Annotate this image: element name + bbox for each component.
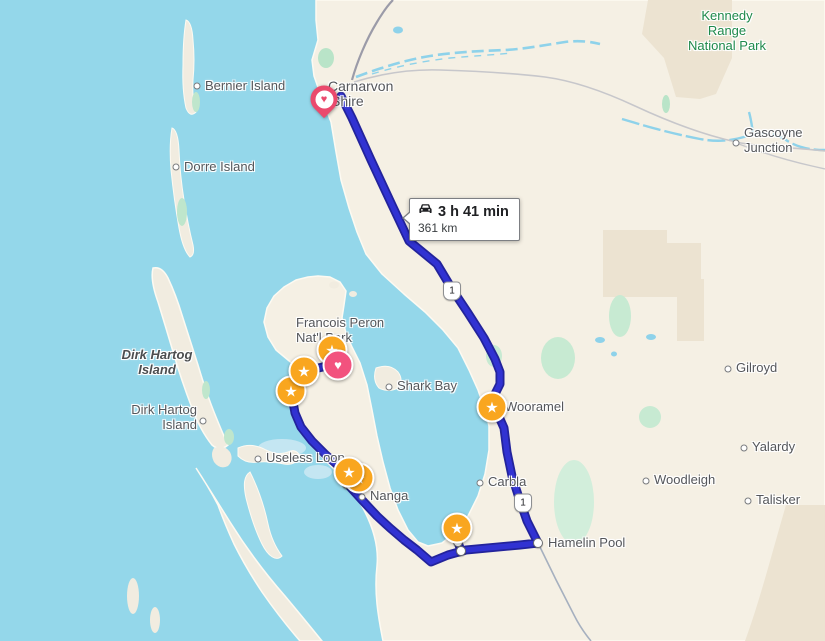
highway-1-shield: 1 — [514, 494, 532, 513]
locality-dot-gascoyne-junction — [733, 140, 740, 147]
vegetation — [639, 406, 661, 428]
pond — [393, 27, 403, 34]
label-line: Wooramel — [505, 399, 564, 414]
shallow — [177, 198, 187, 226]
locality-dot-carbla — [477, 480, 484, 487]
map-base-layer — [0, 0, 825, 641]
route-distance: 361 km — [418, 221, 509, 235]
locality-dot-dorre-island — [173, 164, 180, 171]
route-waypoint-dot — [456, 546, 466, 556]
map-label-useless-loop[interactable]: Useless Loop — [266, 450, 345, 465]
label-line: Dorre Island — [184, 159, 255, 174]
route-duration: 3 h 41 min — [438, 204, 509, 220]
map-label-dorre-island[interactable]: Dorre Island — [184, 159, 255, 174]
islet — [127, 578, 139, 614]
shallow — [202, 381, 210, 399]
locality-dot-talisker — [745, 498, 752, 505]
label-line: Talisker — [756, 492, 800, 507]
map-label-gascoyne-junction[interactable]: GascoyneJunction — [744, 125, 803, 155]
vegetation — [318, 48, 334, 68]
map-label-kennedy-range-national-park[interactable]: KennedyRangeNational Park — [688, 8, 766, 53]
route-waypoint-dot — [533, 538, 543, 548]
label-line: Gascoyne — [744, 125, 803, 140]
starred-place-marker[interactable]: ★ — [334, 457, 365, 488]
pond — [595, 337, 605, 343]
locality-dot-dirk-hartog-island-locality — [200, 418, 207, 425]
label-line: Carnarvon — [328, 79, 393, 94]
tooltip-pointer — [402, 211, 410, 225]
label-line: Island — [122, 362, 193, 377]
pond — [611, 352, 617, 357]
label-line: Dirk Hartog — [122, 347, 193, 362]
label-line: National Park — [688, 38, 766, 53]
label-line: Dirk Hartog — [131, 402, 197, 417]
islet — [329, 282, 339, 289]
map-label-carnarvon[interactable]: Carnarvon — [328, 79, 393, 94]
label-line: Kennedy — [688, 8, 766, 23]
map-label-hamelin-pool[interactable]: Hamelin Pool — [548, 535, 625, 550]
starred-place-marker[interactable]: ★ — [477, 392, 508, 423]
map-label-dirk-hartog-island-locality[interactable]: Dirk HartogIsland — [131, 402, 197, 432]
islet — [349, 291, 357, 297]
starred-place-marker[interactable]: ★ — [442, 513, 473, 544]
locality-dot-gilroyd — [725, 366, 732, 373]
label-line: Carbla — [488, 474, 526, 489]
map-label-yalardy[interactable]: Yalardy — [752, 439, 795, 454]
vegetation — [541, 337, 575, 379]
map-label-talisker[interactable]: Talisker — [756, 492, 800, 507]
label-line: Yalardy — [752, 439, 795, 454]
label-line: Useless Loop — [266, 450, 345, 465]
islet — [150, 607, 160, 633]
favorite-place-marker[interactable]: ♥ — [323, 350, 354, 381]
locality-dot-woodleigh — [643, 478, 650, 485]
map-canvas[interactable]: KennedyRangeNational ParkGascoyneJunctio… — [0, 0, 825, 641]
heart-icon: ♥ — [315, 90, 333, 108]
label-line: Island — [131, 417, 197, 432]
shallow — [192, 92, 200, 112]
map-label-wooramel[interactable]: Wooramel — [505, 399, 564, 414]
map-label-nanga[interactable]: Nanga — [370, 488, 408, 503]
shallow — [224, 429, 234, 445]
shoal — [304, 465, 332, 479]
map-label-bernier-island[interactable]: Bernier Island — [205, 78, 285, 93]
map-label-shark-bay[interactable]: Shark Bay — [397, 378, 457, 393]
label-line: Nanga — [370, 488, 408, 503]
locality-dot-useless-loop — [255, 456, 262, 463]
pond — [646, 334, 656, 340]
label-line: Gilroyd — [736, 360, 777, 375]
route-info-tooltip[interactable]: 3 h 41 min 361 km — [409, 198, 520, 241]
label-line: Hamelin Pool — [548, 535, 625, 550]
map-label-woodleigh[interactable]: Woodleigh — [654, 472, 715, 487]
locality-dot-bernier-island — [194, 83, 201, 90]
vegetation — [662, 95, 670, 113]
locality-dot-nanga — [359, 494, 366, 501]
label-line: Woodleigh — [654, 472, 715, 487]
map-label-gilroyd[interactable]: Gilroyd — [736, 360, 777, 375]
label-line: Shark Bay — [397, 378, 457, 393]
starred-place-marker[interactable]: ★ — [289, 356, 320, 387]
map-label-dirk-hartog-island-feature[interactable]: Dirk HartogIsland — [122, 347, 193, 377]
locality-dot-yalardy — [741, 445, 748, 452]
label-line: Range — [688, 23, 766, 38]
label-line: Junction — [744, 140, 803, 155]
label-line: Bernier Island — [205, 78, 285, 93]
vegetation — [609, 295, 631, 337]
favorite-place-pin[interactable]: ♥ — [311, 86, 338, 113]
label-line: Francois Peron — [296, 315, 384, 330]
locality-dot-shark-bay — [386, 384, 393, 391]
vegetation — [554, 460, 594, 544]
car-icon — [418, 203, 433, 220]
highway-1-shield: 1 — [443, 282, 461, 301]
map-label-carbla[interactable]: Carbla — [488, 474, 526, 489]
